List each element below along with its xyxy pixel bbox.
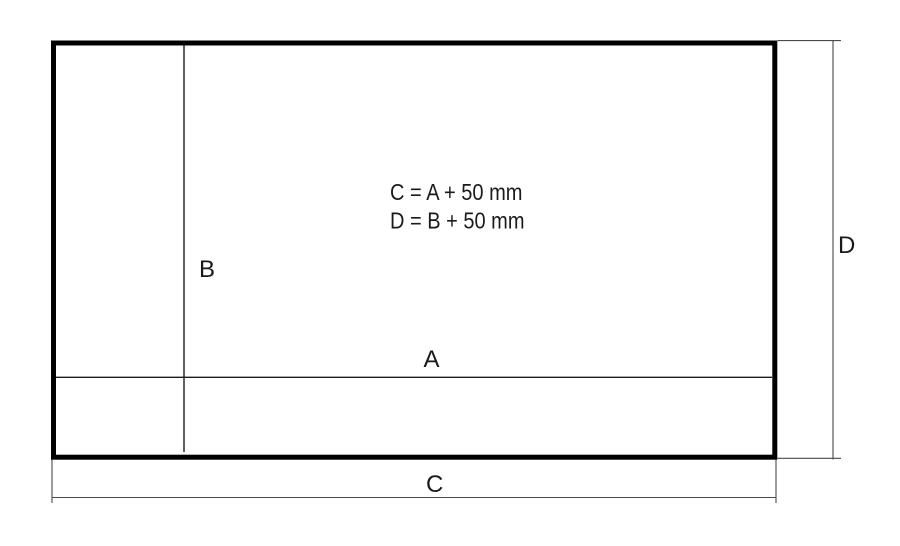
svg-text:C = A + 50 mm: C = A + 50 mm xyxy=(390,179,523,205)
svg-text:C: C xyxy=(426,471,443,498)
svg-text:B: B xyxy=(199,256,215,283)
svg-text:D = B + 50 mm: D = B + 50 mm xyxy=(390,208,525,234)
svg-text:D: D xyxy=(838,232,855,259)
svg-text:A: A xyxy=(424,346,440,373)
